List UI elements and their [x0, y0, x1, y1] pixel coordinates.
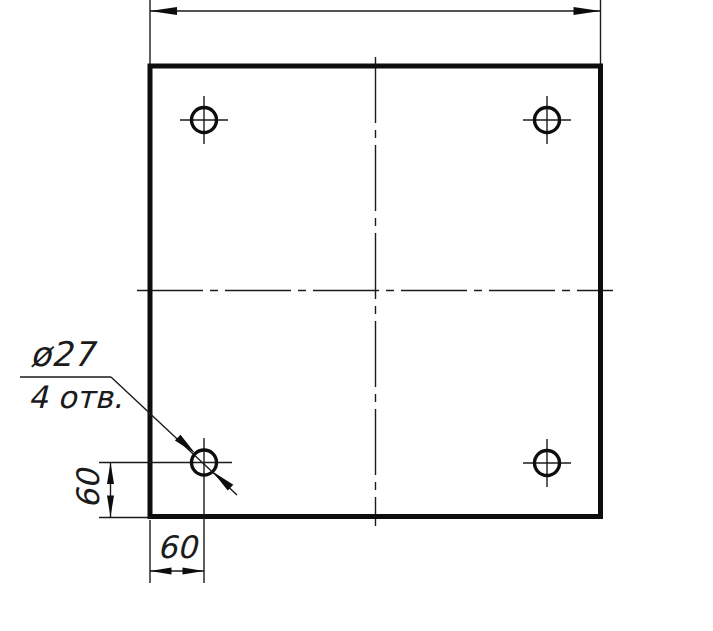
hole-count-label: 4 отв. — [28, 379, 123, 415]
leader-arrowhead-lower-icon — [213, 472, 233, 491]
dimension-left-60: 60 — [70, 463, 152, 518]
arrowhead-up-icon — [107, 463, 114, 485]
hole-top-right — [523, 96, 571, 144]
dimension-bottom-60: 60 — [150, 520, 204, 583]
arrowhead-right-icon — [574, 7, 601, 15]
drawing-sheet: ø27 4 отв. 60 60 — [0, 0, 713, 631]
hole-top-left — [180, 96, 228, 144]
arrowhead-right-icon — [183, 568, 205, 575]
dimension-bottom-value: 60 — [157, 529, 199, 565]
dimension-left-value: 60 — [70, 467, 106, 509]
hole-bottom-right — [523, 439, 571, 487]
hole-diameter-label: ø27 — [30, 334, 97, 374]
leader-arrowhead-upper-icon — [175, 435, 195, 454]
dimension-top-overall — [150, 0, 601, 64]
technical-drawing-canvas: ø27 4 отв. 60 60 — [0, 0, 713, 631]
arrowhead-down-icon — [107, 496, 114, 518]
arrowhead-left-icon — [150, 7, 177, 15]
arrowhead-left-icon — [150, 568, 172, 575]
center-lines — [137, 57, 613, 526]
